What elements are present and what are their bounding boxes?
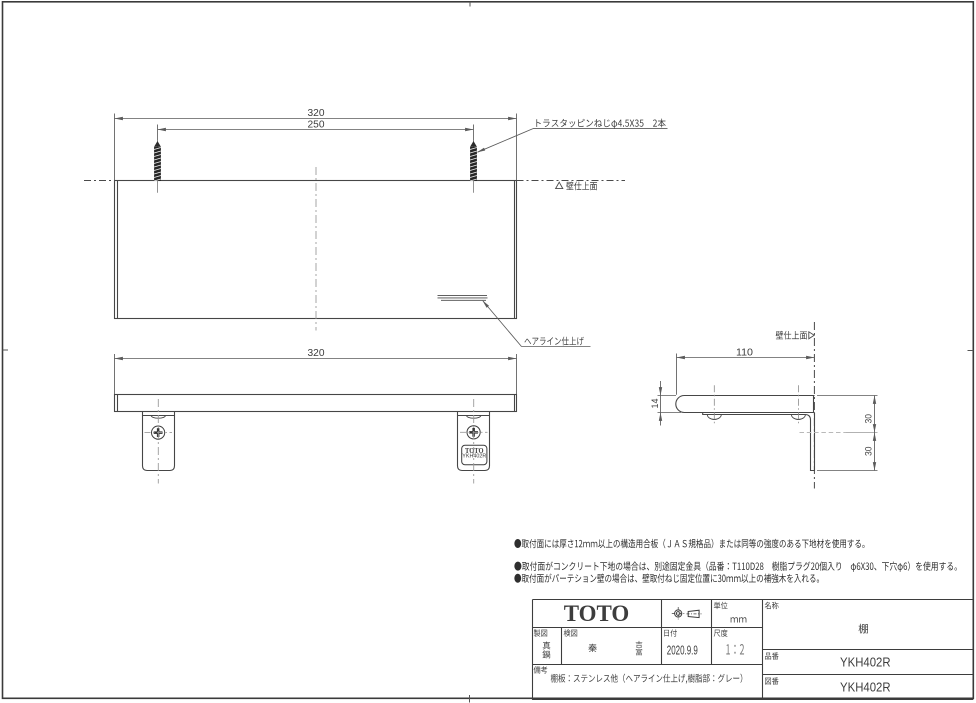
svg-text:YKH402R: YKH402R bbox=[462, 453, 486, 459]
svg-text:YKH402R: YKH402R bbox=[840, 654, 891, 669]
svg-text:TOTO: TOTO bbox=[564, 601, 630, 626]
svg-text:110: 110 bbox=[736, 348, 753, 359]
svg-text:30: 30 bbox=[864, 414, 874, 424]
svg-text:2020.9.9: 2020.9.9 bbox=[667, 643, 698, 657]
svg-text:YKH402R: YKH402R bbox=[840, 679, 891, 694]
svg-text:320: 320 bbox=[308, 108, 325, 119]
svg-text:14: 14 bbox=[650, 399, 660, 409]
svg-text:250: 250 bbox=[308, 119, 325, 130]
svg-text:30: 30 bbox=[864, 447, 874, 457]
svg-text:320: 320 bbox=[308, 348, 325, 359]
